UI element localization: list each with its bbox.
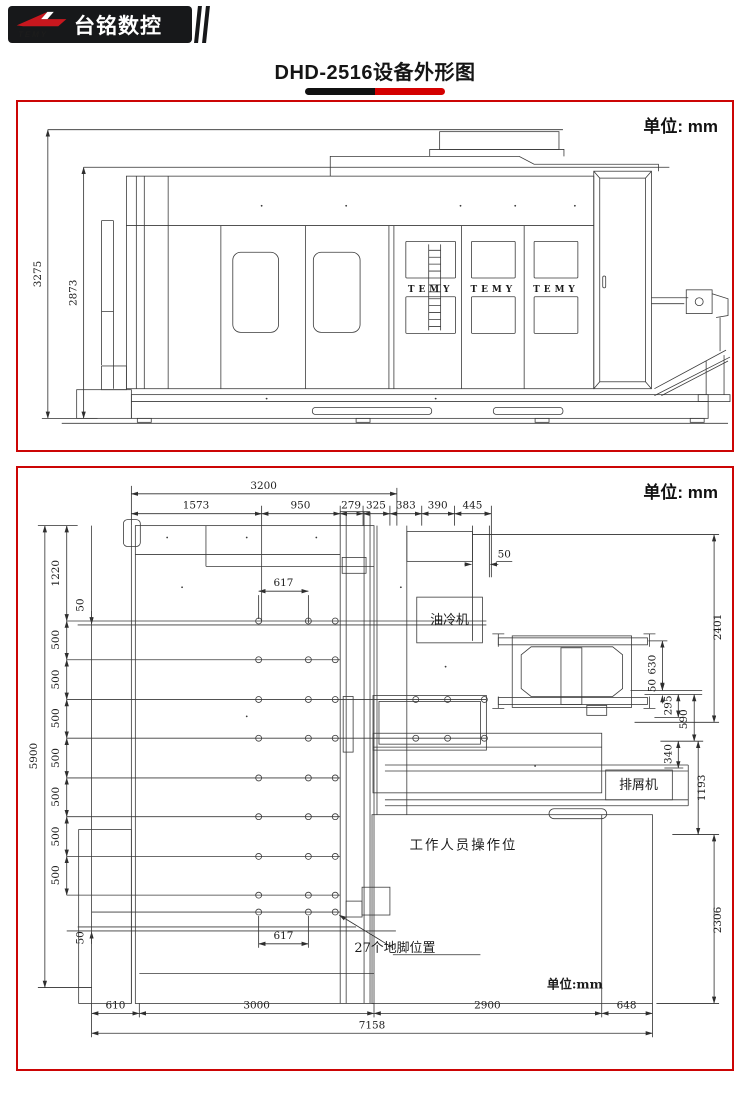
side-view-drawing: 3275 2873 — [18, 102, 732, 450]
dim-top-5: 390 — [428, 500, 448, 512]
logo-double-bar-icon — [196, 6, 208, 43]
anchor-note-label: 27个地脚位置 — [354, 940, 435, 956]
dim-right-590: 590 — [678, 709, 690, 729]
plan-view-panel: 单位: mm — [16, 466, 734, 1071]
dim-left-2: 500 — [50, 670, 62, 690]
plan-outline — [67, 512, 689, 1004]
dim-bottom-3: 648 — [617, 999, 637, 1011]
brand-logo: TEMY 台铭数控 — [8, 6, 192, 43]
dim-length-total: 7158 — [359, 1019, 386, 1031]
page: TEMY 台铭数控 DHD-2516设备外形图 单位: mm — [0, 0, 750, 1094]
dim-top-6: 445 — [462, 500, 482, 512]
anchor-bolt-circles — [256, 618, 488, 915]
dim-617-bottom: 617 — [274, 930, 294, 942]
dim-bottom-0: 610 — [105, 999, 125, 1011]
dim-left-7: 500 — [50, 865, 62, 885]
dim-right-50: 50 — [646, 679, 658, 692]
dim-top-0: 1573 — [183, 500, 210, 512]
dim-width-total: 3200 — [250, 480, 277, 492]
plan-view-drawing: 3200 1573 950 279 325 383 390 445 5900 1… — [18, 468, 732, 1069]
dim-bottom-2: 2900 — [474, 999, 501, 1011]
dim-left-6: 500 — [50, 827, 62, 847]
dim-right-295: 295 — [662, 695, 674, 715]
operator-area-label: 工作人员操作位 — [410, 837, 518, 853]
title-block: DHD-2516设备外形图 — [0, 56, 750, 95]
dim-left-5: 500 — [50, 787, 62, 807]
title-underline-bar — [305, 88, 445, 95]
panel-brand-text: TEMY — [471, 285, 517, 295]
machine-dots — [261, 205, 576, 400]
dim-offset-50-mid: 50 — [498, 548, 511, 560]
dim-top-1: 950 — [290, 500, 310, 512]
dim-left-0: 1220 — [50, 560, 62, 587]
dim-right-340: 340 — [662, 744, 674, 764]
brand-mark-text: TEMY — [17, 30, 49, 39]
page-title: DHD-2516设备外形图 — [0, 56, 750, 85]
brand-name: 台铭数控 — [74, 10, 162, 40]
dim-bottom-1: 3000 — [243, 999, 270, 1011]
dim-left-3: 500 — [50, 708, 62, 728]
dim-body-height: 2873 — [68, 280, 80, 306]
dim-depth-total: 5900 — [28, 743, 40, 770]
oil-cooler-label: 油冷机 — [430, 613, 469, 628]
dim-right-2401: 2401 — [712, 614, 724, 641]
dim-top-4: 383 — [396, 500, 416, 512]
dim-top-2: 279 — [341, 500, 361, 512]
dim-617-top: 617 — [274, 577, 294, 589]
dim-left-1: 500 — [50, 630, 62, 650]
chip-conveyor-label: 排屑机 — [619, 778, 658, 793]
dim-offset-50-top: 50 — [75, 598, 87, 611]
dim-right-1193: 1193 — [696, 775, 708, 802]
panel-brand-text: TEMY — [533, 285, 579, 295]
dim-right-2306: 2306 — [712, 907, 724, 934]
dim-offset-50-bottom: 50 — [75, 931, 87, 944]
dim-left-4: 500 — [50, 748, 62, 768]
side-view-panel: 单位: mm 3275 2873 — [16, 100, 734, 452]
dim-right-630: 630 — [646, 655, 658, 675]
brand-swoosh-icon: TEMY — [14, 8, 70, 41]
plan-unit-note: 单位:mm — [547, 977, 603, 992]
panel-brand-text: TEMY — [408, 285, 454, 295]
dim-total-height: 3275 — [32, 261, 44, 287]
dim-top-3: 325 — [366, 500, 386, 512]
machine-outline — [62, 132, 730, 424]
